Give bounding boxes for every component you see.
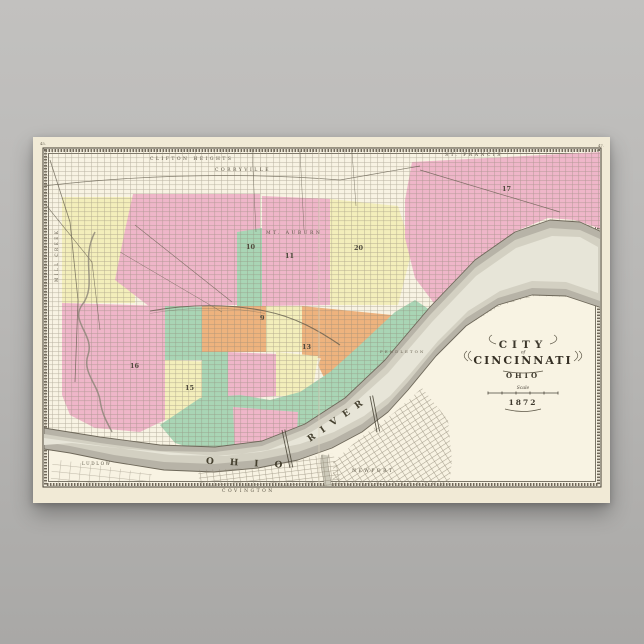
label-pendleton: PENDLETON: [380, 349, 425, 354]
ward-number-11: 11: [285, 252, 294, 260]
label-mill-creek: MILL CREEK: [54, 229, 59, 282]
cartouche-year: 1872: [509, 398, 538, 407]
cartouche-name: CINCINNATI: [473, 354, 572, 367]
cartouche-scale-label: Scale: [517, 385, 530, 391]
ward-number-16: 16: [130, 362, 140, 370]
label-newport: NEWPORT: [352, 468, 394, 474]
ward-number-13: 13: [302, 343, 312, 351]
label-covington: COVINGTON: [222, 488, 275, 494]
ward-number-17: 17: [502, 185, 511, 193]
ward-number-10: 10: [246, 243, 256, 251]
map-poster: CLIFTON HEIGHTS CORRYVILLE MT. AUBURN ST…: [33, 137, 610, 503]
ward-number-20: 20: [354, 244, 364, 252]
cincinnati-map: CLIFTON HEIGHTS CORRYVILLE MT. AUBURN ST…: [33, 137, 610, 503]
ward-number-15: 15: [185, 384, 195, 392]
page-number-left: 45.: [40, 141, 46, 146]
label-st-francis: ST. FRANCIS: [445, 152, 503, 158]
wall-background: CLIFTON HEIGHTS CORRYVILLE MT. AUBURN ST…: [0, 0, 644, 644]
ward-number-9: 9: [260, 314, 265, 322]
label-clifton-heights: CLIFTON HEIGHTS: [150, 156, 233, 162]
page-number-right: 47.: [598, 143, 604, 148]
label-ludlow: LUDLOW: [82, 461, 112, 466]
label-corryville: CORRYVILLE: [215, 167, 271, 173]
label-mt-auburn: MT. AUBURN: [266, 230, 322, 236]
cartouche-city: CITY: [499, 339, 548, 351]
